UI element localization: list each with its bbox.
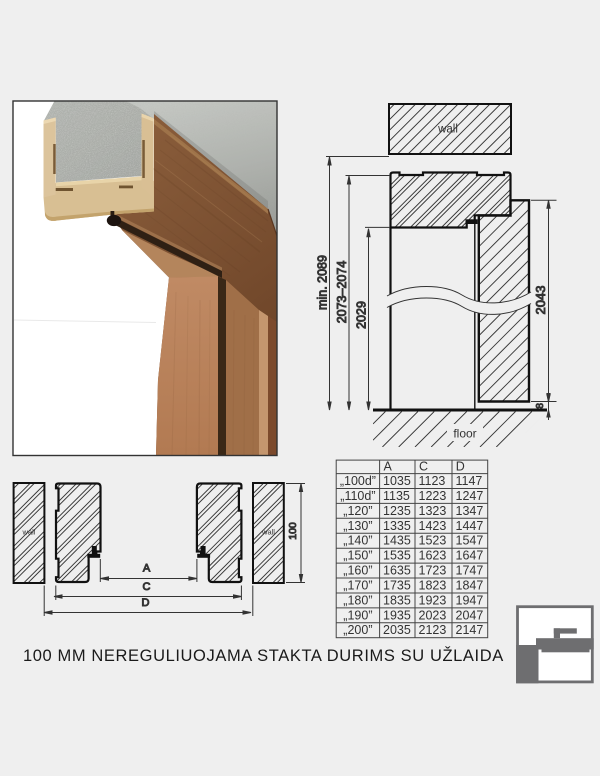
svg-text:1423: 1423: [419, 519, 447, 533]
svg-text:1835: 1835: [383, 593, 411, 607]
svg-text:1247: 1247: [456, 489, 484, 503]
svg-text:2123: 2123: [419, 623, 447, 637]
svg-text:„180”: „180”: [343, 593, 372, 607]
svg-text:„110d”: „110d”: [340, 489, 375, 503]
svg-text:1223: 1223: [419, 489, 447, 503]
svg-text:2023: 2023: [419, 608, 447, 622]
svg-text:100: 100: [287, 522, 299, 540]
svg-text:„160”: „160”: [343, 564, 372, 578]
svg-text:2029: 2029: [355, 301, 369, 329]
svg-text:1335: 1335: [383, 519, 411, 533]
svg-text:2073–2074: 2073–2074: [335, 261, 349, 324]
svg-text:1635: 1635: [383, 564, 411, 578]
svg-text:1447: 1447: [456, 519, 484, 533]
svg-text:„150”: „150”: [343, 549, 372, 563]
svg-text:1147: 1147: [456, 474, 483, 488]
svg-text:1623: 1623: [419, 549, 447, 563]
svg-text:„130”: „130”: [343, 519, 372, 533]
svg-text:A: A: [143, 563, 151, 575]
svg-text:100 MM NEREGULIUOJAMA STAKTA D: 100 MM NEREGULIUOJAMA STAKTA DURIMS SU U…: [23, 646, 504, 665]
svg-text:D: D: [142, 597, 150, 609]
svg-text:1347: 1347: [456, 504, 484, 518]
svg-text:„200”: „200”: [343, 623, 372, 637]
svg-text:1123: 1123: [419, 474, 446, 488]
svg-text:1935: 1935: [383, 608, 411, 622]
svg-text:1323: 1323: [419, 504, 447, 518]
svg-text:D: D: [456, 460, 465, 474]
svg-text:„100d”: „100d”: [340, 474, 376, 488]
svg-text:wall: wall: [437, 124, 458, 136]
svg-text:1035: 1035: [383, 474, 411, 488]
svg-text:1435: 1435: [383, 534, 411, 548]
svg-text:floor: floor: [453, 427, 476, 441]
svg-text:1135: 1135: [383, 489, 410, 503]
svg-text:1735: 1735: [383, 579, 411, 593]
svg-text:wall: wall: [261, 528, 275, 537]
svg-text:8: 8: [535, 403, 546, 409]
svg-text:A: A: [384, 460, 393, 474]
svg-text:1535: 1535: [383, 549, 411, 563]
svg-text:„190”: „190”: [343, 608, 372, 622]
svg-text:2035: 2035: [383, 623, 411, 637]
svg-text:1923: 1923: [419, 593, 447, 607]
svg-text:„140”: „140”: [343, 534, 372, 548]
svg-text:1235: 1235: [383, 504, 411, 518]
svg-text:2047: 2047: [456, 608, 484, 622]
svg-text:min. 2089: min. 2089: [316, 255, 330, 310]
svg-text:2043: 2043: [533, 286, 548, 315]
svg-text:C: C: [143, 581, 151, 593]
svg-text:1723: 1723: [419, 564, 447, 578]
svg-text:1547: 1547: [456, 534, 484, 548]
svg-text:1947: 1947: [456, 593, 484, 607]
svg-text:wall: wall: [22, 528, 36, 537]
svg-text:„170”: „170”: [343, 579, 372, 593]
svg-text:1823: 1823: [419, 579, 447, 593]
svg-text:1647: 1647: [456, 549, 484, 563]
svg-text:„120”: „120”: [343, 504, 372, 518]
svg-text:C: C: [419, 460, 428, 474]
svg-text:1847: 1847: [456, 579, 484, 593]
svg-text:1523: 1523: [419, 534, 447, 548]
svg-text:2147: 2147: [456, 623, 484, 637]
svg-text:1747: 1747: [456, 564, 484, 578]
